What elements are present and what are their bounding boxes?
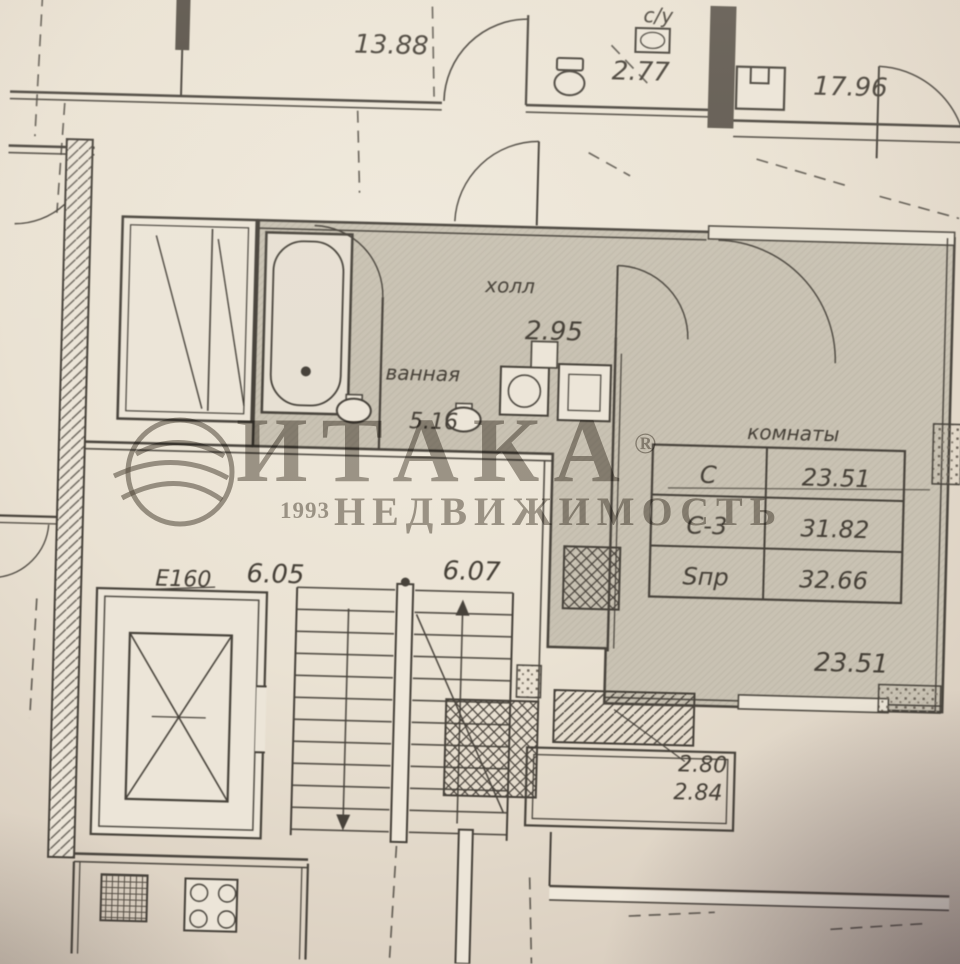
table-title: комнаты [747, 420, 840, 446]
vent-block-icon [563, 546, 621, 609]
label-area-2-95: 2.95 [525, 316, 584, 348]
left-wall [48, 139, 93, 857]
floor-plan-photo: 13.88 с/у 2.77 17.96 холл 2.95 ванная 5.… [0, 0, 960, 964]
label-wc: с/у [643, 3, 674, 28]
table-row-label: С [700, 461, 718, 489]
table-row-value: 31.82 [800, 514, 869, 544]
label-dim-2-80: 2.80 [678, 752, 728, 778]
stove-icon [184, 878, 237, 931]
label-area-13-88: 13.88 [354, 30, 429, 62]
label-area-5-16: 5.16 [409, 409, 459, 435]
toilet-icon [554, 58, 585, 96]
bathtub-icon [262, 232, 353, 414]
label-area-23-51: 23.51 [814, 648, 889, 680]
label-area-2-77: 2.77 [611, 56, 670, 88]
floor-plan: 13.88 с/у 2.77 17.96 холл 2.95 ванная 5.… [0, 0, 960, 964]
kitchen-sink-block-icon [100, 874, 147, 921]
washing-machine-icon [500, 367, 549, 416]
table-row-value: 32.66 [799, 565, 868, 595]
label-dim-2-84: 2.84 [673, 780, 723, 806]
elevator [91, 584, 269, 838]
lower-flat [72, 820, 955, 964]
sink-icon [635, 28, 670, 53]
table-row-label: Sпр [682, 562, 729, 591]
label-area-6-07: 6.07 [442, 556, 501, 588]
vent-shaft-icon [736, 67, 785, 110]
label-area-6-05: 6.05 [246, 559, 305, 591]
label-area-17-96: 17.96 [813, 72, 888, 104]
wc-fixtures [554, 26, 786, 110]
label-bathroom: ванная [385, 360, 460, 386]
table-row-label: С-3 [686, 511, 727, 540]
closet-shaft [118, 217, 257, 422]
floor-plan-drawing: 13.88 с/у 2.77 17.96 холл 2.95 ванная 5.… [0, 0, 960, 964]
label-elevator: Е160 [155, 567, 212, 593]
table-row-value: 23.51 [802, 463, 871, 493]
label-hall: холл [484, 273, 535, 298]
